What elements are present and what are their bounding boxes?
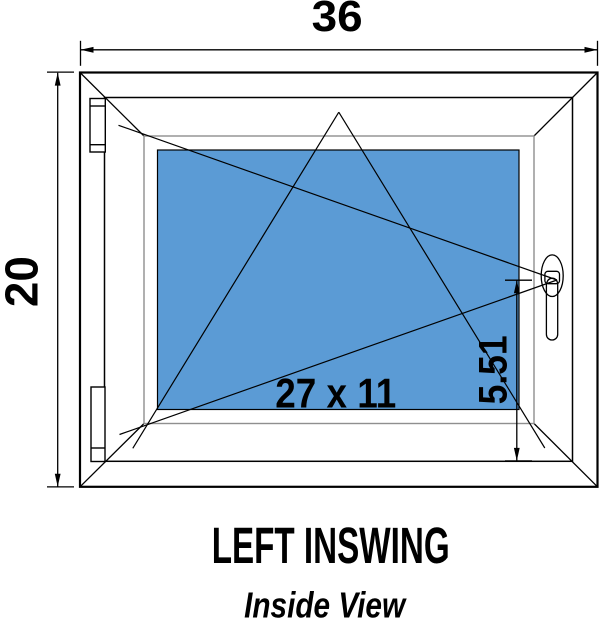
svg-text:LEFT INSWING: LEFT INSWING <box>212 517 450 574</box>
svg-text:20: 20 <box>0 256 48 307</box>
svg-text:36: 36 <box>312 0 363 41</box>
svg-text:27 x 11: 27 x 11 <box>275 370 396 416</box>
svg-text:Inside View: Inside View <box>244 584 407 623</box>
svg-text:5.51: 5.51 <box>472 335 516 404</box>
